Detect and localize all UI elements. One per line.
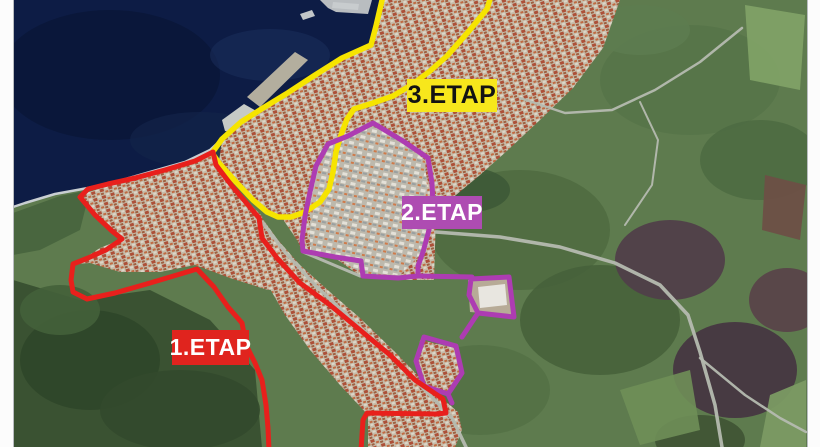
terrain-patch: [20, 285, 100, 335]
satellite-map-figure: 3.ETAP2.ETAP1.ETAP: [0, 0, 820, 447]
zone-label-etap1: 1.ETAP: [172, 330, 249, 365]
terrain-patch: [745, 5, 805, 90]
right-margin: [808, 0, 820, 447]
terrain-patch: [615, 220, 725, 300]
zone-label-etap2: 2.ETAP: [402, 196, 482, 229]
terrain-patch: [100, 370, 260, 447]
terrain-patch: [762, 175, 806, 240]
water-shade: [210, 29, 330, 81]
zone-label-etap3: 3.ETAP: [407, 79, 497, 112]
zone-outline-etap2: [418, 276, 472, 277]
left-margin: [0, 0, 13, 447]
building: [478, 284, 507, 308]
